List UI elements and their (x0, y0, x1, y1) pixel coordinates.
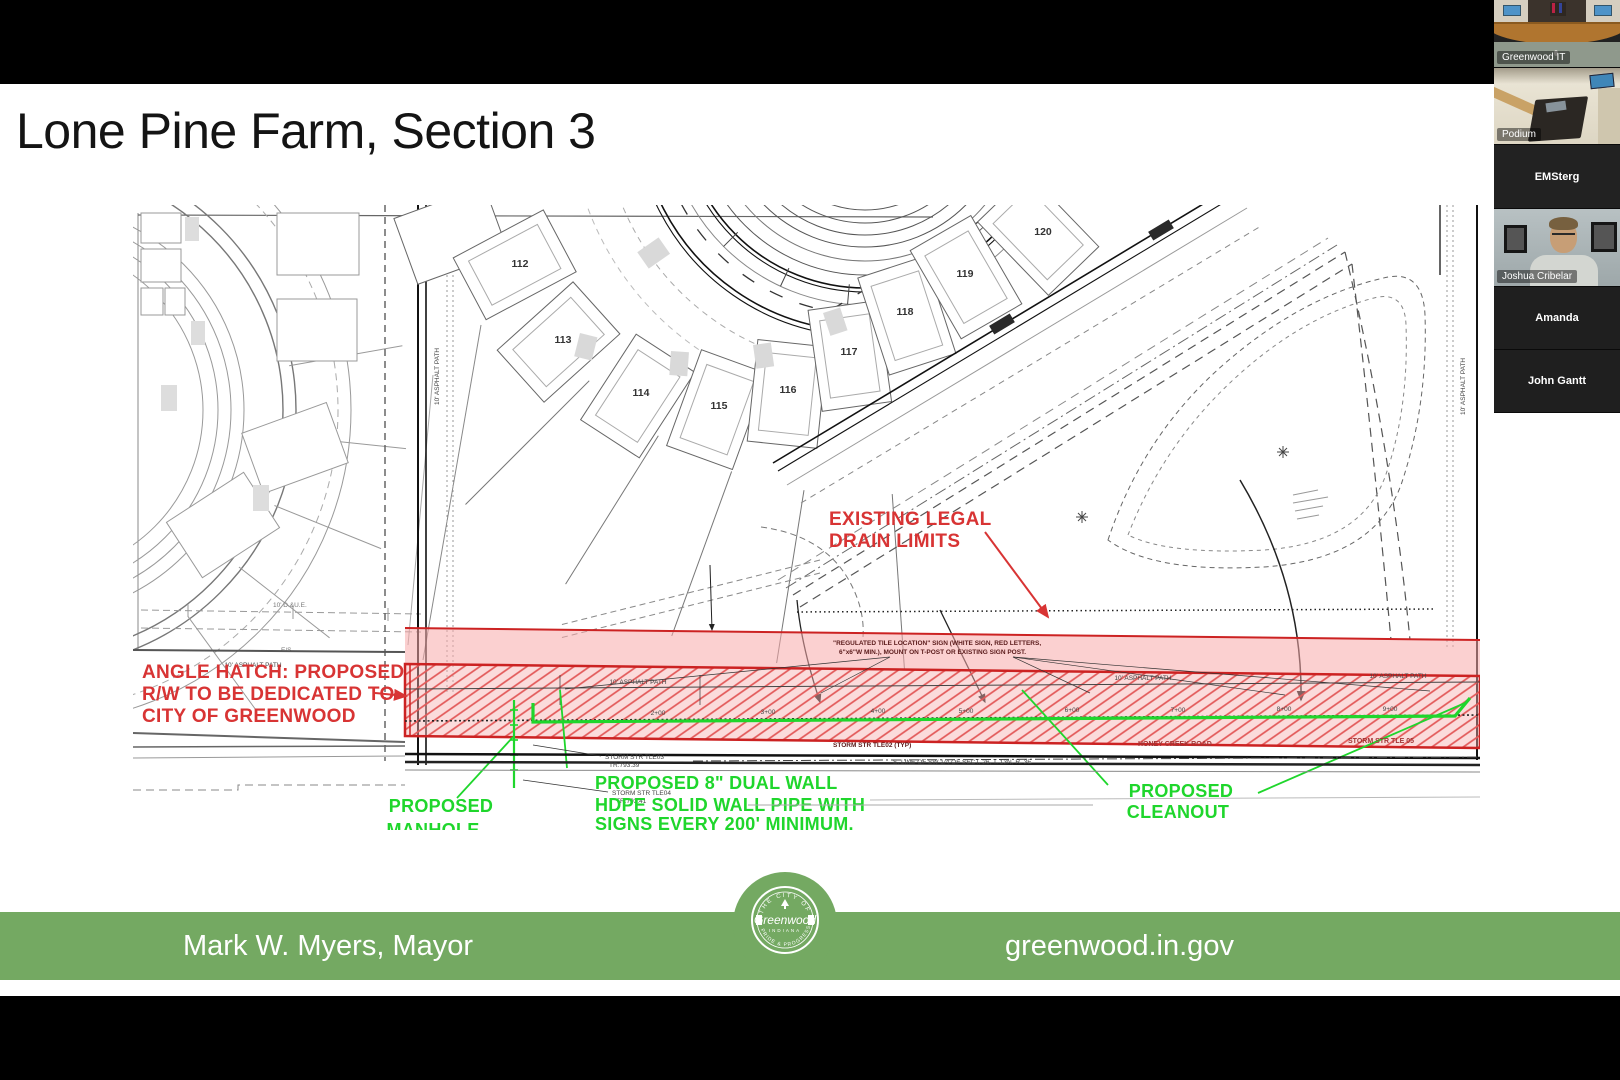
svg-text:2+00: 2+00 (651, 710, 666, 717)
lot-117: 117 (841, 346, 858, 358)
greenwood-badge-icon: THE CITY OF Greenwood INDIANA PRIDE & PR… (750, 885, 820, 955)
lot-119: 119 (957, 268, 974, 280)
participant-name-label: EMSterg (1494, 145, 1620, 208)
svg-text:3+00: 3+00 (761, 709, 776, 716)
letterbox-top (0, 0, 1620, 84)
annotation-pipe: PROPOSED 8" DUAL WALL HDPE SOLID WALL PI… (595, 773, 1093, 830)
svg-text:S. LINE OF SW 1/4 OF SECT. 26,: S. LINE OF SW 1/4 OF SECT. 26, T. 13N, R… (893, 759, 1032, 766)
participant-tile-amanda[interactable]: Amanda (1494, 287, 1620, 350)
annotation-angle-hatch: ANGLE HATCH: PROPOSED R/W TO BE DEDICATE… (142, 662, 406, 727)
mayor-name: Mark W. Myers, Mayor (183, 912, 473, 980)
slide-title: Lone Pine Farm, Section 3 (16, 102, 596, 160)
plat-drawing: 10' D.&U.E. E/S 10' ASPHALT PATH (133, 205, 1480, 830)
due-label: 10' D.&U.E. (273, 602, 307, 609)
picture-frame-right-icon (1591, 222, 1617, 252)
participant-tile-greenwood-it[interactable]: Greenwood IT (1494, 0, 1620, 68)
participant-tile-emsterg[interactable]: EMSterg (1494, 145, 1620, 209)
svg-text:7+00: 7+00 (1171, 707, 1186, 714)
svg-text:DRAIN LIMITS: DRAIN LIMITS (829, 531, 960, 552)
flag-red-icon (1552, 3, 1555, 13)
greenwood-logo: THE CITY OF Greenwood INDIANA PRIDE & PR… (750, 885, 820, 955)
svg-text:CITY OF GREENWOOD: CITY OF GREENWOOD (142, 706, 356, 727)
svg-text:R/W TO BE DEDICATED TO: R/W TO BE DEDICATED TO (142, 684, 395, 705)
lot-115: 115 (711, 400, 728, 412)
participant-name-label: John Gantt (1494, 350, 1620, 412)
person-hair (1549, 217, 1578, 230)
svg-text:6+00: 6+00 (1065, 707, 1080, 714)
annotation-cleanout: PROPOSED CLEANOUT (1127, 781, 1233, 822)
svg-text:STORM STR TLE03: STORM STR TLE03 (605, 754, 664, 761)
annotation-manhole: PROPOSED MANHOLE (386, 796, 493, 830)
svg-text:5+00: 5+00 (959, 708, 974, 715)
svg-text:TR:793.39: TR:793.39 (609, 762, 640, 769)
svg-text:PROPOSED: PROPOSED (389, 796, 493, 816)
lot-120: 120 (1034, 226, 1052, 238)
participant-tile-john-gantt[interactable]: John Gantt (1494, 350, 1620, 413)
picture-frame-left-icon (1504, 225, 1527, 253)
svg-text:STORM STR TLE02 (TYP): STORM STR TLE02 (TYP) (833, 742, 911, 749)
participants-panel: Greenwood IT Podium EMSterg Joshua Cribe… (1494, 0, 1620, 413)
participant-name-label: Amanda (1494, 287, 1620, 349)
letterbox-bottom (0, 996, 1620, 1080)
lot-113: 113 (555, 334, 572, 346)
chamber-dais (1494, 22, 1620, 44)
svg-text:EXISTING LEGAL: EXISTING LEGAL (829, 509, 992, 530)
west-section-lots (141, 213, 359, 578)
city-website: greenwood.in.gov (1005, 912, 1234, 980)
person-glasses-icon (1552, 233, 1575, 241)
participant-tile-podium[interactable]: Podium (1494, 68, 1620, 145)
shared-slide: Lone Pine Farm, Section 3 (0, 84, 1620, 996)
svg-text:10' ASPHALT PATH: 10' ASPHALT PATH (609, 679, 666, 686)
plat-svg: 10' D.&U.E. E/S 10' ASPHALT PATH (133, 205, 1480, 830)
ns-path-label: 10' ASPHALT PATH (434, 348, 441, 405)
flag-blue-icon (1559, 3, 1562, 13)
svg-text:ANGLE HATCH: PROPOSED: ANGLE HATCH: PROPOSED (142, 662, 404, 683)
podium-right-wall (1598, 88, 1620, 145)
svg-text:HONEY CREEK ROAD: HONEY CREEK ROAD (1138, 741, 1212, 748)
svg-text:SIGNS EVERY 200' MINIMUM.: SIGNS EVERY 200' MINIMUM. (595, 814, 854, 830)
participant-name-label: Joshua Cribelar (1497, 270, 1577, 283)
svg-text:8+00: 8+00 (1277, 706, 1292, 713)
svg-text:10' ASPHALT PATH: 10' ASPHALT PATH (1114, 675, 1171, 682)
svg-text:MANHOLE: MANHOLE (386, 820, 479, 830)
sign-note-1: "REGULATED TILE LOCATION" SIGN (WHITE SI… (833, 640, 1041, 647)
meeting-window: Lone Pine Farm, Section 3 (0, 0, 1620, 1080)
sign-note-2: 6"x6"W MIN.), MOUNT ON T-POST OR EXISTIN… (839, 649, 1026, 656)
svg-text:CLEANOUT: CLEANOUT (1127, 802, 1229, 822)
lot-114: 114 (633, 387, 650, 399)
svg-text:10' ASPHALT PATH: 10' ASPHALT PATH (1369, 673, 1426, 680)
svg-text:STORM STR TLE 05: STORM STR TLE 05 (1348, 738, 1414, 745)
lot-118: 118 (897, 306, 914, 318)
svg-text:9+00: 9+00 (1383, 706, 1398, 713)
lot-112: 112 (512, 258, 529, 270)
svg-text:4+00: 4+00 (871, 708, 886, 715)
east-path-label: 10' ASPHALT PATH (1460, 358, 1467, 415)
svg-text:PROPOSED 8" DUAL WALL: PROPOSED 8" DUAL WALL (595, 773, 838, 793)
svg-text:PROPOSED: PROPOSED (1129, 781, 1233, 801)
participant-tile-joshua-cribelar[interactable]: Joshua Cribelar (1494, 209, 1620, 287)
lot-116: 116 (780, 384, 797, 396)
participant-name-label: Podium (1497, 128, 1541, 141)
chamber-screen-left-icon (1503, 5, 1521, 16)
chamber-screen-right-icon (1594, 5, 1612, 16)
logo-text-indiana: INDIANA (769, 928, 801, 933)
podium-monitor-icon (1589, 73, 1614, 89)
annotation-drain-limits: EXISTING LEGAL DRAIN LIMITS (829, 509, 1048, 617)
participant-name-label: Greenwood IT (1497, 51, 1570, 64)
